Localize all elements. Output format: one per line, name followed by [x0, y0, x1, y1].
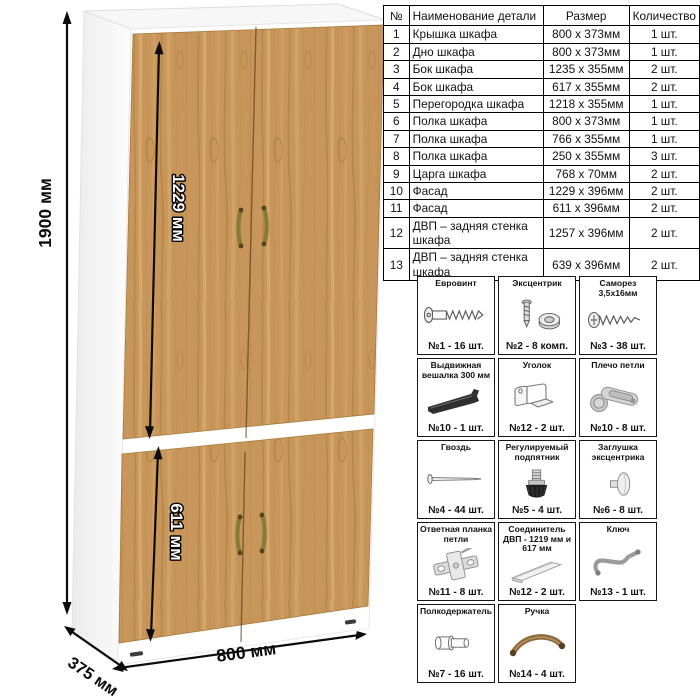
cell-name: Полка шкафа: [409, 130, 543, 147]
wardrobe-illustration: 1900 мм 1229 мм 611 мм 375 мм: [0, 0, 400, 700]
hardware-item-count: №4 - 44 шт.: [428, 505, 484, 516]
adjustable-foot-icon: [500, 462, 574, 505]
hardware-item-title: Полкодержатель: [420, 607, 492, 617]
cell-qty: 1 шт.: [629, 130, 699, 147]
cell-name: Фасад: [409, 182, 543, 199]
header-size: Размер: [543, 6, 629, 26]
cell-name: Крышка шкафа: [409, 26, 543, 43]
cell-size: 800 x 373мм: [543, 113, 629, 130]
hardware-item-eurovint: Евровинт №1 - 16 шт.: [417, 276, 495, 355]
cell-num: 12: [384, 217, 410, 249]
cell-qty: 2 шт.: [629, 61, 699, 78]
cell-size: 800 x 373мм: [543, 43, 629, 60]
hardware-item-ugolok: Уголок №12 - 2 шт.: [498, 358, 576, 437]
cell-num: 8: [384, 148, 410, 165]
table-row: 9Царга шкафа768 x 70мм2 шт.: [384, 165, 700, 182]
header-num: №: [384, 6, 410, 26]
cell-qty: 1 шт.: [629, 95, 699, 112]
hardware-item-count: №2 - 8 комп.: [506, 341, 568, 352]
dimension-height-label: 1900 мм: [35, 178, 55, 248]
header-qty: Количество: [629, 6, 699, 26]
hinge-plate-icon: [419, 544, 493, 587]
upper-doors: [123, 25, 384, 439]
table-row: 6Полка шкафа800 x 373мм1 шт.: [384, 113, 700, 130]
hardware-item-count: №7 - 16 шт.: [428, 669, 484, 680]
cell-name: Бок шкафа: [409, 61, 543, 78]
cell-num: 1: [384, 26, 410, 43]
hardware-item-title: Саморез 3,5x16мм: [581, 279, 655, 298]
hardware-grid: Евровинт №1 - 16 шт. Эксцентрик: [417, 276, 657, 683]
table-row: 11Фасад611 x 396мм2 шт.: [384, 200, 700, 217]
cell-qty: 1 шт.: [629, 113, 699, 130]
cell-name: Дно шкафа: [409, 43, 543, 60]
hardware-item-handle: Ручка №14 - 4 шт.: [498, 604, 576, 683]
handle-icon: [500, 617, 574, 669]
hardware-item-count: №3 - 38 шт.: [590, 341, 646, 352]
cell-size: 1257 x 396мм: [543, 217, 629, 249]
hardware-item-title: Плечо петли: [591, 361, 644, 371]
cell-qty: 1 шт.: [629, 26, 699, 43]
hinge-arm-icon: [581, 371, 655, 423]
cell-name: Полка шкафа: [409, 148, 543, 165]
parts-table: № Наименование детали Размер Количество …: [383, 5, 700, 281]
hardware-item-hinge-arm: Плечо петли №10 - 8 шт.: [579, 358, 657, 437]
table-row: 5Перегородка шкафа1218 x 355мм1 шт.: [384, 95, 700, 112]
cell-size: 611 x 396мм: [543, 200, 629, 217]
cell-name: Бок шкафа: [409, 78, 543, 95]
table-row: 7Полка шкафа766 x 355мм1 шт.: [384, 130, 700, 147]
cell-num: 3: [384, 61, 410, 78]
handle-cap: [262, 242, 267, 247]
cell-size: 800 x 373мм: [543, 26, 629, 43]
cell-name: Фасад: [409, 200, 543, 217]
hardware-item-title: Соединитель ДВП - 1219 мм и 617 мм: [500, 525, 574, 554]
hardware-item-title: Ручка: [525, 607, 550, 617]
cell-num: 6: [384, 113, 410, 130]
cell-num: 13: [384, 249, 410, 281]
cell-size: 766 x 355мм: [543, 130, 629, 147]
handle-cap: [238, 515, 243, 520]
cell-qty: 2 шт.: [629, 200, 699, 217]
hardware-item-title: Регулируемый подпятник: [500, 443, 574, 462]
hardware-item-eccentric: Эксцентрик №2 - 8 комп.: [498, 276, 576, 355]
hardware-item-samorez: Саморез 3,5x16мм №3 - 38 шт.: [579, 276, 657, 355]
hardware-item-count: №5 - 4 шт.: [512, 505, 562, 516]
table-row: 10Фасад1229 x 396мм2 шт.: [384, 182, 700, 199]
hardware-item-count: №12 - 2 шт.: [509, 587, 565, 598]
hardware-item-hanger: Выдвижная вешалка 300 мм №10 - 1 шт.: [417, 358, 495, 437]
handle-cap: [239, 244, 244, 249]
dimension-height: 1900 мм: [35, 11, 72, 615]
eccentric-cam-icon: [500, 289, 574, 341]
cell-qty: 2 шт.: [629, 182, 699, 199]
euro-screw-icon: [419, 289, 493, 341]
cell-size: 250 x 355мм: [543, 148, 629, 165]
cell-name: ДВП – задняя стенка шкафа: [409, 217, 543, 249]
header-name: Наименование детали: [409, 6, 543, 26]
hardware-item-count: №10 - 8 шт.: [590, 423, 646, 434]
cam-cap-icon: [581, 462, 655, 505]
hardware-item-hinge-plate: Ответная планка петли №11 - 8 шт.: [417, 522, 495, 601]
handle-cap: [262, 206, 267, 211]
cell-num: 5: [384, 95, 410, 112]
cell-size: 1229 x 396мм: [543, 182, 629, 199]
hardware-item-count: №13 - 1 шт.: [590, 587, 646, 598]
cell-num: 7: [384, 130, 410, 147]
handle-cap: [260, 549, 265, 554]
handle-cap: [239, 208, 244, 213]
handle-cap: [260, 513, 265, 518]
corner-bracket-icon: [500, 371, 574, 423]
hardware-item-cap: Заглушка эксцентрика №6 - 8 шт.: [579, 440, 657, 519]
cell-size: 1235 x 355мм: [543, 61, 629, 78]
parts-table-header-row: № Наименование детали Размер Количество: [384, 6, 700, 26]
cell-size: 768 x 70мм: [543, 165, 629, 182]
hardware-item-title: Заглушка эксцентрика: [581, 443, 655, 462]
cell-num: 9: [384, 165, 410, 182]
cell-num: 4: [384, 78, 410, 95]
hardware-item-title: Гвоздь: [441, 443, 471, 453]
cell-name: Полка шкафа: [409, 113, 543, 130]
table-row: 12ДВП – задняя стенка шкафа1257 x 396мм2…: [384, 217, 700, 249]
assembly-sheet: 1900 мм 1229 мм 611 мм 375 мм: [0, 0, 700, 700]
hardware-item-count: №6 - 8 шт.: [593, 505, 643, 516]
cell-name: Перегородка шкафа: [409, 95, 543, 112]
hardware-item-count: №1 - 16 шт.: [428, 341, 484, 352]
hardware-item-connector: Соединитель ДВП - 1219 мм и 617 мм №12 -…: [498, 522, 576, 601]
hex-key-icon: [581, 535, 655, 587]
shelf-pin-icon: [419, 617, 493, 669]
hardware-item-key: Ключ №13 - 1 шт.: [579, 522, 657, 601]
cell-qty: 3 шт.: [629, 148, 699, 165]
hardware-item-count: №14 - 4 шт.: [509, 669, 565, 680]
handle-cap: [238, 551, 243, 556]
cell-qty: 2 шт.: [629, 78, 699, 95]
hardware-item-shelf-pin: Полкодержатель №7 - 16 шт.: [417, 604, 495, 683]
cell-num: 2: [384, 43, 410, 60]
hardware-item-title: Ключ: [607, 525, 630, 535]
table-row: 2Дно шкафа800 x 373мм1 шт.: [384, 43, 700, 60]
cell-name: Царга шкафа: [409, 165, 543, 182]
table-row: 1Крышка шкафа800 x 373мм1 шт.: [384, 26, 700, 43]
hardware-item-count: №10 - 1 шт.: [428, 423, 484, 434]
hdf-connector-icon: [500, 554, 574, 587]
hardware-item-title: Ответная планка петли: [419, 525, 493, 544]
hardware-item-title: Уголок: [523, 361, 551, 371]
table-row: 3Бок шкафа1235 x 355мм2 шт.: [384, 61, 700, 78]
cell-size: 1218 x 355мм: [543, 95, 629, 112]
hardware-item-title: Евровинт: [435, 279, 476, 289]
hardware-item-count: №11 - 8 шт.: [428, 587, 483, 598]
nail-icon: [419, 453, 493, 505]
hardware-item-title: Выдвижная вешалка 300 мм: [419, 361, 493, 380]
cell-qty: 2 шт.: [629, 217, 699, 249]
pull-out-hanger-icon: [419, 380, 493, 423]
dimension-upper-door-label: 1229 мм: [169, 174, 188, 242]
self-tapping-screw-icon: [581, 298, 655, 341]
table-row: 8Полка шкафа250 x 355мм3 шт.: [384, 148, 700, 165]
cell-size: 617 x 355мм: [543, 78, 629, 95]
cell-num: 11: [384, 200, 410, 217]
cell-qty: 2 шт.: [629, 165, 699, 182]
dimension-lower-door-label: 611 мм: [167, 503, 186, 560]
cell-qty: 1 шт.: [629, 43, 699, 60]
hardware-item-nail: Гвоздь №4 - 44 шт.: [417, 440, 495, 519]
hardware-item-count: №12 - 2 шт.: [509, 423, 565, 434]
hardware-item-title: Эксцентрик: [512, 279, 561, 289]
hardware-item-foot: Регулируемый подпятник №5 - 4 шт.: [498, 440, 576, 519]
table-row: 4Бок шкафа617 x 355мм2 шт.: [384, 78, 700, 95]
cell-num: 10: [384, 182, 410, 199]
